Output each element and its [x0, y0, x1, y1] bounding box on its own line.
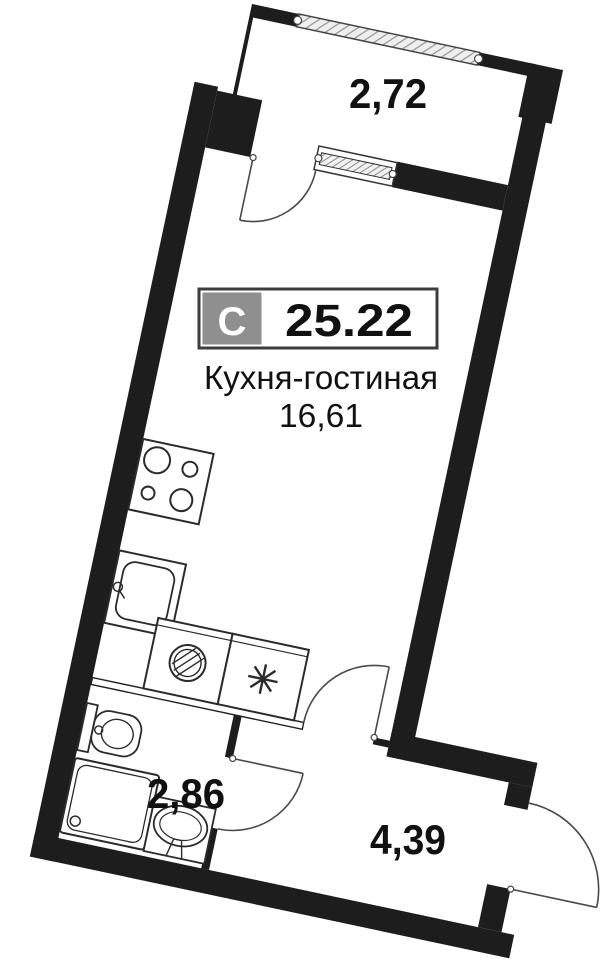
balcony-area-label: 2,72	[349, 70, 427, 117]
balcony-window	[312, 146, 398, 187]
bathroom-door	[215, 755, 304, 844]
wall-hallway-top	[387, 732, 538, 787]
unit-type-letter: С	[218, 300, 247, 344]
balcony-door	[237, 154, 316, 233]
stove-icon	[128, 439, 213, 524]
room-hallway-door	[303, 652, 392, 741]
partition-bath-upper	[225, 715, 242, 759]
room-area-label: 16,61	[279, 397, 363, 434]
hallway-area-label: 4,39	[370, 816, 446, 863]
wall-balcony-top-right	[477, 52, 535, 77]
entrance-door	[507, 802, 600, 910]
floorplan-canvas: 2,72 С 25.22 Кухня-гостиная 16,61 2,86 4…	[0, 0, 600, 976]
bathroom-area-label: 2,86	[147, 770, 225, 817]
refrigerator-icon	[218, 634, 309, 721]
floor-plan	[30, 0, 600, 974]
balcony-glazing	[292, 13, 483, 66]
shower-tray-icon	[60, 758, 160, 850]
toilet-icon	[77, 703, 145, 762]
glazing-band	[296, 14, 480, 65]
wall-balcony-top-left	[251, 4, 299, 26]
room-name-label: Кухня-гостиная	[204, 359, 438, 396]
unit-badge: С 25.22	[199, 289, 437, 348]
floorplan-page: 2,72 С 25.22 Кухня-гостиная 16,61 2,86 4…	[0, 0, 600, 976]
wall-balcony-separator	[392, 162, 508, 211]
wall-entrance-pier	[504, 782, 532, 809]
total-area-value: 25.22	[285, 295, 413, 346]
washing-machine-icon	[143, 618, 232, 704]
wall-entrance-lower	[478, 884, 511, 932]
